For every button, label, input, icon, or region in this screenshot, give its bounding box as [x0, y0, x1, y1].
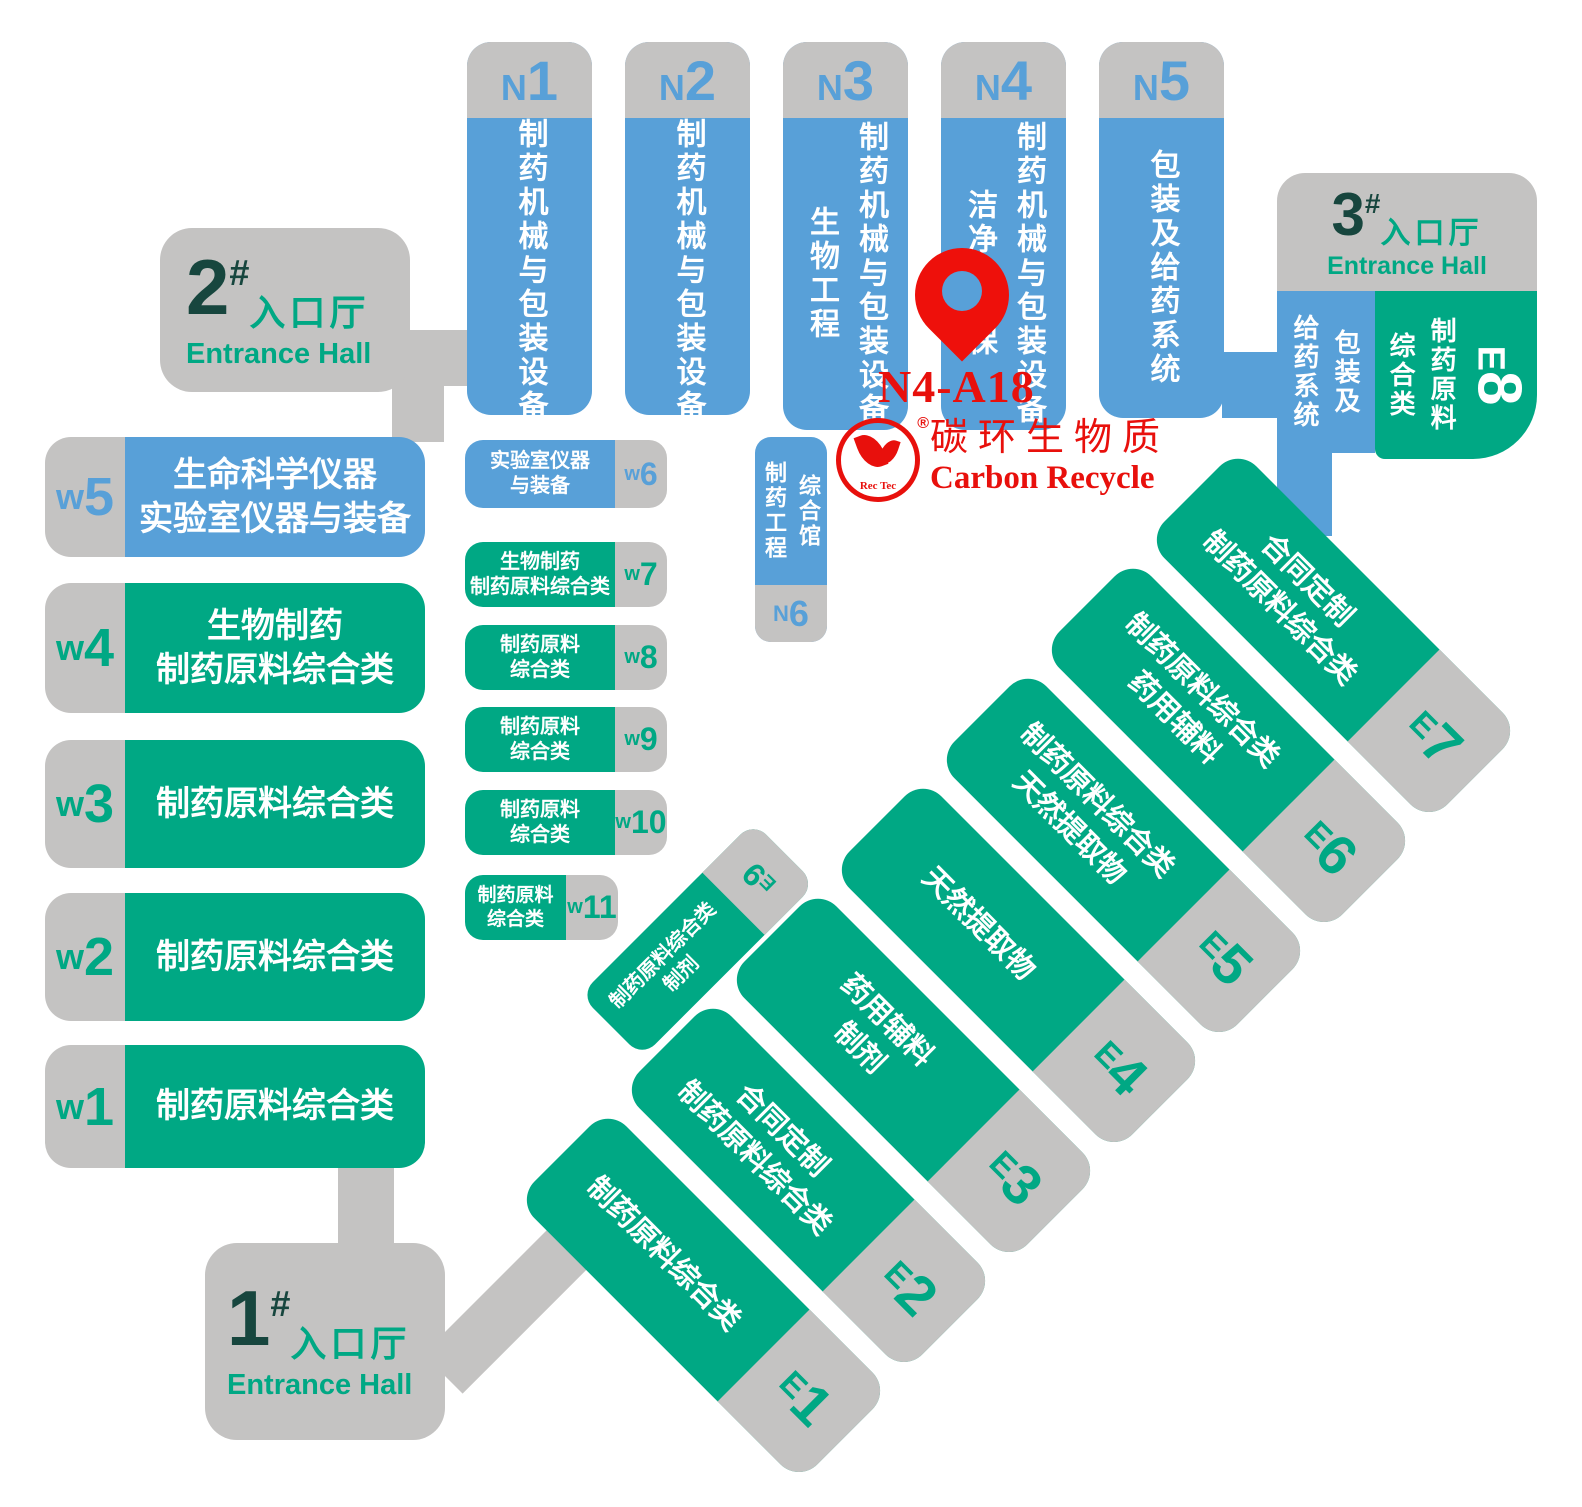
connector-entrance1-w1	[338, 1164, 394, 1254]
hall-w10-label: w10	[615, 790, 667, 855]
connector-entrance2-w5	[392, 378, 444, 442]
hall-w4-label: w4	[45, 583, 125, 713]
hall-w3-label: w3	[45, 740, 125, 868]
leaf-icon-small	[877, 437, 900, 467]
hall-w7: 生物制药制药原料综合类 w7	[465, 542, 667, 607]
hall-e8-blue-col-right: 包装及	[1328, 329, 1365, 416]
logo-name-cn: 碳环生物质	[930, 418, 1170, 460]
hall-w11-category: 制药原料综合类	[465, 875, 566, 940]
entrance-hall-2: 2 # 入口厅 Entrance Hall	[160, 228, 410, 392]
hall-n1: N1 制药机械与包装设备	[467, 42, 592, 415]
hall-n2-category: 制药机械与包装设备	[625, 118, 750, 424]
hall-w4-category: 生物制药制药原料综合类	[125, 583, 425, 713]
connector-n5-e8	[1222, 352, 1282, 418]
hall-n3-label: N3	[817, 48, 874, 113]
registered-mark: ®	[917, 415, 929, 433]
hall-e8-blue-col-left: 给药系统	[1287, 314, 1324, 430]
hall-w7-label: w7	[615, 542, 667, 607]
hall-w9: 制药原料综合类 w9	[465, 707, 667, 772]
hall-w11: 制药原料综合类 w11	[465, 875, 618, 940]
hall-w1-label: w1	[45, 1045, 125, 1168]
hall-n4-header: N4	[941, 42, 1066, 118]
hall-n6-label: N6	[755, 585, 827, 642]
hall-n1-label: N1	[501, 48, 558, 113]
exhibitor-logo: Rec Tec ® 碳环生物质 Carbon Recycle	[836, 418, 1170, 502]
hall-w4: w4 生物制药制药原料综合类	[45, 583, 425, 713]
hall-e8: 综合类 制药原料 E8	[1375, 291, 1537, 459]
hall-e8-col-right: 制药原料	[1424, 317, 1461, 433]
hall-n2-header: N2	[625, 42, 750, 118]
hall-w8-category: 制药原料综合类	[465, 625, 615, 690]
hall-w5-category: 生命科学仪器实验室仪器与装备	[125, 437, 425, 557]
entrance-2-title: 2 # 入口厅	[186, 250, 410, 336]
location-pin-hole	[942, 271, 982, 311]
hall-w10: 制药原料综合类 w10	[465, 790, 667, 855]
entrance-2-number: 2	[186, 250, 229, 324]
entrance-3-label-cn: 入口厅	[1380, 208, 1482, 252]
hall-w5: w5 生命科学仪器实验室仪器与装备	[45, 437, 425, 557]
hall-w3: w3 制药原料综合类	[45, 740, 425, 868]
hall-w11-label: w11	[566, 875, 618, 940]
entrance-2-hash: #	[229, 252, 249, 294]
booth-number: N4-A18	[878, 360, 1035, 413]
hall-w7-category: 生物制药制药原料综合类	[465, 542, 615, 607]
hall-e8-col-left: 综合类	[1383, 332, 1420, 419]
entrance-1-number: 1	[227, 1281, 270, 1355]
entrance-1-label-en: Entrance Hall	[227, 1369, 445, 1402]
hall-w6: 实验室仪器与装备 w6	[465, 440, 667, 508]
hall-w1: w1 制药原料综合类	[45, 1045, 425, 1168]
hall-w9-category: 制药原料综合类	[465, 707, 615, 772]
logo-name-en: Carbon Recycle	[930, 460, 1170, 498]
entrance-2-label-en: Entrance Hall	[186, 338, 410, 371]
leaf-circle-icon: Rec Tec ®	[836, 418, 920, 502]
hall-w1-category: 制药原料综合类	[125, 1045, 425, 1168]
entrance-hall-1: 1 # 入口厅 Entrance Hall	[205, 1243, 445, 1440]
hall-w2: w2 制药原料综合类	[45, 893, 425, 1021]
hall-n3-header: N3	[783, 42, 908, 118]
hall-e8-label: E8	[1464, 345, 1535, 405]
entrance-3-number: 3	[1332, 186, 1365, 243]
hall-n6: 制药工程 综合馆 N6	[755, 437, 827, 642]
hall-w8-label: w8	[615, 625, 667, 690]
hall-w6-category: 实验室仪器与装备	[465, 440, 615, 508]
hall-n1-category: 制药机械与包装设备	[467, 118, 592, 424]
hall-n2: N2 制药机械与包装设备	[625, 42, 750, 415]
hall-w10-category: 制药原料综合类	[465, 790, 615, 855]
entrance-1-hash: #	[270, 1283, 290, 1325]
hall-w9-label: w9	[615, 707, 667, 772]
entrance-3-title: 3 # 入口厅	[1332, 186, 1483, 252]
hall-n6-category: 制药工程 综合馆	[755, 437, 827, 585]
entrance-3-label-en: Entrance Hall	[1327, 252, 1487, 281]
hall-w2-category: 制药原料综合类	[125, 893, 425, 1021]
hall-n5: N5 包装及给药系统	[1099, 42, 1224, 418]
hall-e8-packaging-section: 给药系统 包装及	[1277, 291, 1375, 453]
hall-n2-label: N2	[659, 48, 716, 113]
entrance-2-label-cn: 入口厅	[249, 284, 369, 336]
hall-n5-category: 包装及给药系统	[1099, 118, 1224, 418]
logo-badge-text: Rec Tec	[841, 480, 915, 492]
logo-text: 碳环生物质 Carbon Recycle	[930, 418, 1170, 498]
hall-w6-label: w6	[615, 440, 667, 508]
hall-n5-label: N5	[1133, 48, 1190, 113]
hall-n1-header: N1	[467, 42, 592, 118]
hall-w2-label: w2	[45, 893, 125, 1021]
hall-w5-label: w5	[45, 437, 125, 557]
hall-n5-header: N5	[1099, 42, 1224, 118]
hall-n4-label: N4	[975, 48, 1032, 113]
entrance-1-title: 1 # 入口厅	[227, 1281, 445, 1367]
hall-w3-category: 制药原料综合类	[125, 740, 425, 868]
entrance-hall-3: 3 # 入口厅 Entrance Hall	[1277, 173, 1537, 293]
hall-w8: 制药原料综合类 w8	[465, 625, 667, 690]
entrance-1-label-cn: 入口厅	[290, 1315, 410, 1367]
entrance-3-hash: #	[1365, 188, 1381, 220]
